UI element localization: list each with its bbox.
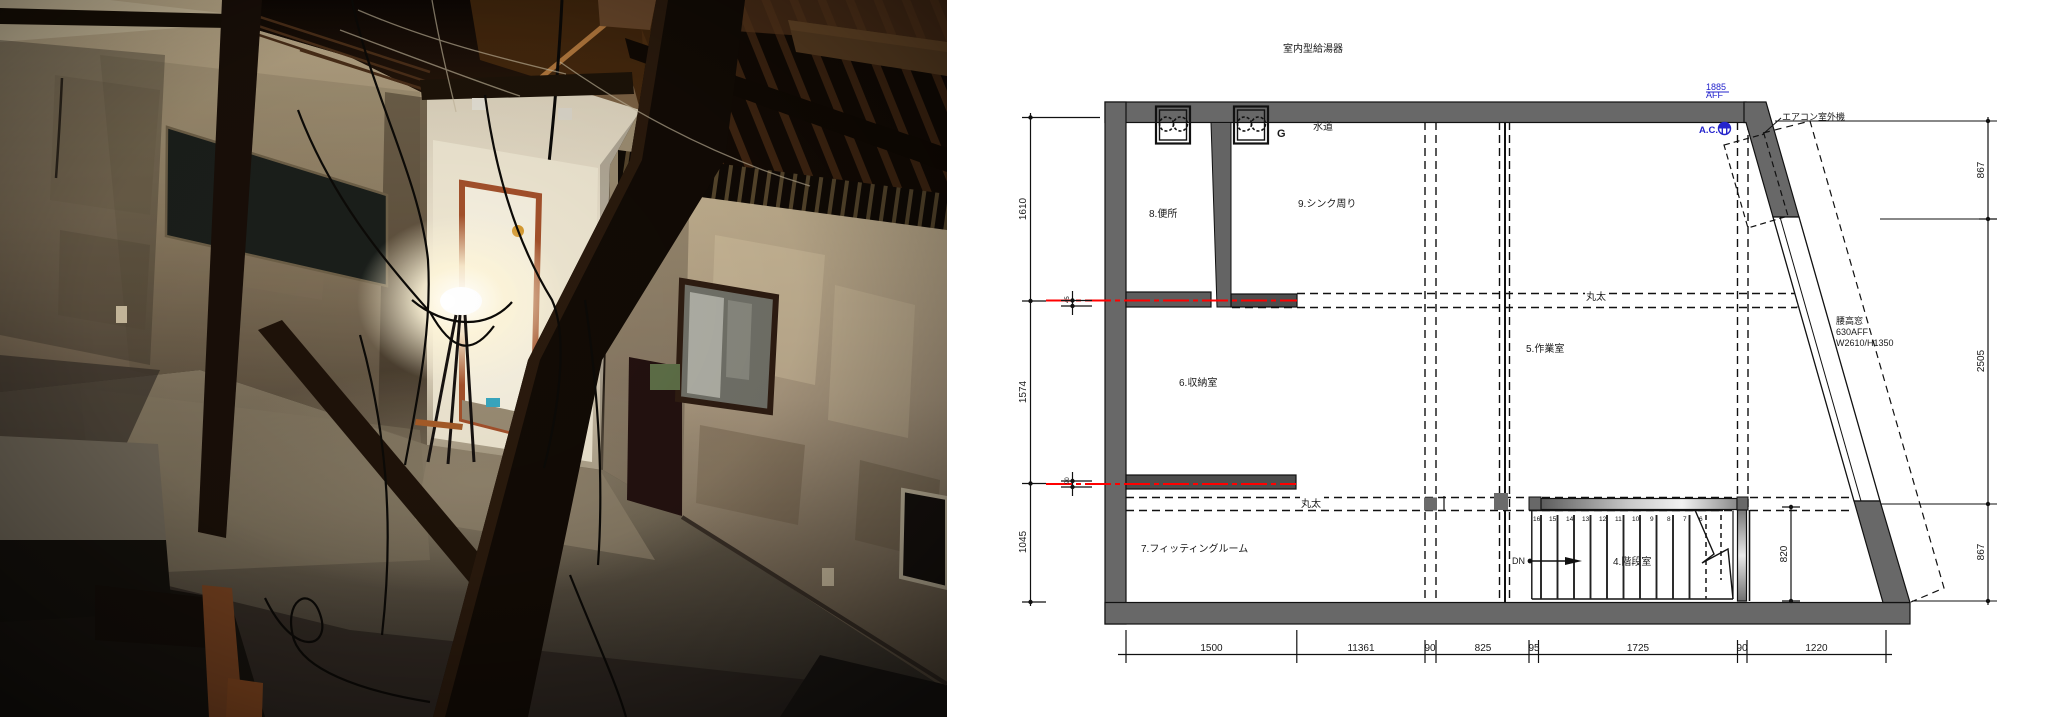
svg-text:8.便所: 8.便所 bbox=[1149, 207, 1177, 220]
svg-text:820: 820 bbox=[1779, 545, 1790, 562]
svg-text:6.収納室: 6.収納室 bbox=[1179, 376, 1217, 389]
svg-text:12: 12 bbox=[1599, 516, 1607, 523]
svg-text:1725: 1725 bbox=[1627, 643, 1650, 654]
svg-text:95: 95 bbox=[1528, 643, 1540, 654]
svg-text:1220: 1220 bbox=[1805, 643, 1828, 654]
svg-text:90: 90 bbox=[1065, 477, 1071, 484]
svg-text:DN: DN bbox=[1512, 556, 1525, 566]
svg-text:13: 13 bbox=[1582, 516, 1590, 523]
svg-text:4.階段室: 4.階段室 bbox=[1613, 555, 1651, 568]
svg-text:11: 11 bbox=[1615, 516, 1622, 523]
svg-text:6: 6 bbox=[1699, 516, 1703, 523]
svg-text:1045: 1045 bbox=[1018, 530, 1029, 553]
svg-text:14: 14 bbox=[1566, 516, 1574, 523]
svg-text:エアコン室外機: エアコン室外機 bbox=[1782, 111, 1845, 122]
svg-text:16: 16 bbox=[1533, 516, 1541, 523]
svg-text:腰高窓: 腰高窓 bbox=[1836, 315, 1863, 326]
svg-text:W2610/H1350: W2610/H1350 bbox=[1836, 338, 1894, 348]
svg-text:1574: 1574 bbox=[1018, 380, 1029, 403]
svg-text:室内型給湯器: 室内型給湯器 bbox=[1283, 42, 1343, 55]
svg-text:10: 10 bbox=[1632, 516, 1640, 523]
svg-text:9: 9 bbox=[1650, 516, 1654, 523]
svg-text:11361: 11361 bbox=[1347, 643, 1375, 654]
svg-text:15: 15 bbox=[1549, 516, 1557, 523]
svg-text:G: G bbox=[1277, 128, 1286, 140]
svg-text:A.C.: A.C. bbox=[1699, 125, 1718, 136]
svg-text:丸太: 丸太 bbox=[1301, 497, 1321, 510]
svg-text:1500: 1500 bbox=[1200, 643, 1223, 654]
svg-text:867: 867 bbox=[1976, 161, 1987, 178]
svg-text:45: 45 bbox=[1065, 296, 1071, 303]
svg-text:90: 90 bbox=[1424, 643, 1436, 654]
svg-text:7: 7 bbox=[1683, 516, 1687, 523]
svg-text:5.作業室: 5.作業室 bbox=[1526, 342, 1564, 355]
svg-text:水道: 水道 bbox=[1313, 120, 1333, 133]
svg-text:825: 825 bbox=[1475, 643, 1492, 654]
svg-text:1610: 1610 bbox=[1018, 197, 1029, 220]
svg-text:90: 90 bbox=[1736, 643, 1748, 654]
svg-text:2505: 2505 bbox=[1976, 349, 1987, 372]
svg-text:8: 8 bbox=[1667, 516, 1671, 523]
svg-text:9.シンク周り: 9.シンク周り bbox=[1298, 198, 1356, 210]
svg-text:867: 867 bbox=[1976, 543, 1987, 560]
svg-text:丸太: 丸太 bbox=[1586, 290, 1606, 303]
svg-text:630AFF: 630AFF bbox=[1836, 327, 1869, 337]
svg-text:7.フィッティングルーム: 7.フィッティングルーム bbox=[1141, 542, 1248, 555]
